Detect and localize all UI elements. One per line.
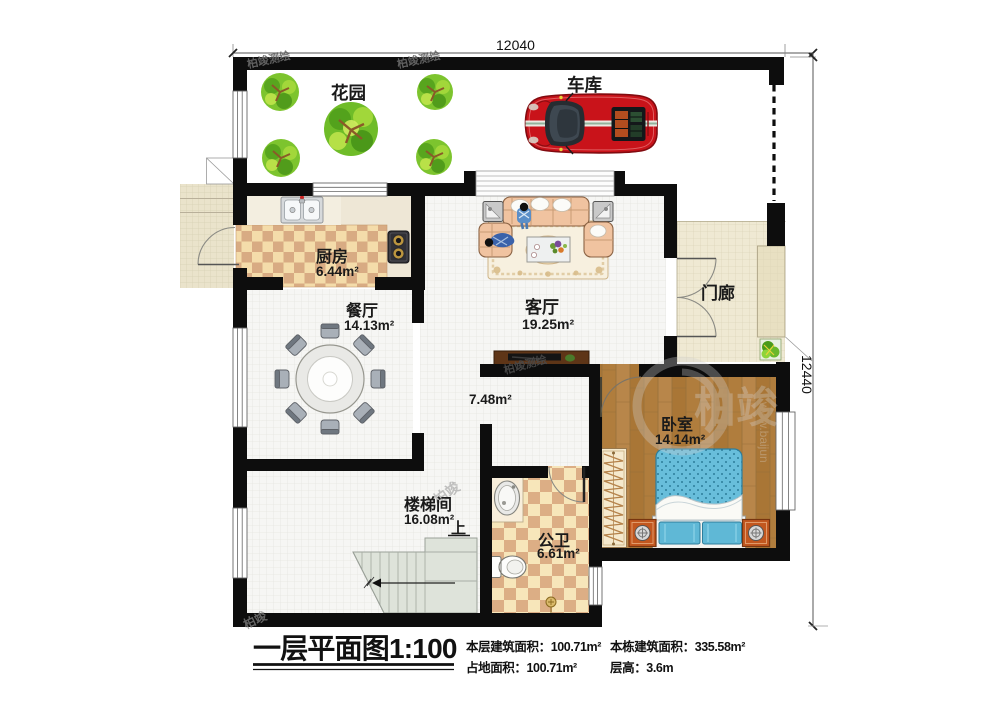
svg-text:本层建筑面积：100.71m²: 本层建筑面积：100.71m² — [466, 639, 601, 654]
svg-text:车库: 车库 — [567, 75, 602, 95]
svg-text:12440: 12440 — [799, 355, 815, 394]
svg-text:6.44m²: 6.44m² — [316, 264, 359, 279]
svg-text:层高：3.6m: 层高：3.6m — [610, 660, 673, 675]
svg-text:14.14m²: 14.14m² — [655, 432, 706, 447]
svg-text:16.08m²: 16.08m² — [404, 512, 455, 527]
svg-text:花园: 花园 — [331, 83, 366, 103]
svg-text:19.25m²: 19.25m² — [522, 316, 574, 332]
svg-text:占地面积：100.71m²: 占地面积：100.71m² — [466, 660, 577, 675]
svg-text:客厅: 客厅 — [524, 297, 559, 317]
svg-text:www.baijun: www.baijun — [757, 401, 771, 463]
svg-text:6.61m²: 6.61m² — [537, 546, 580, 561]
svg-text:一层平面图1:100: 一层平面图1:100 — [253, 633, 457, 664]
svg-text:门廊: 门廊 — [701, 283, 735, 303]
svg-text:本栋建筑面积：335.58m²: 本栋建筑面积：335.58m² — [610, 639, 745, 654]
svg-text:14.13m²: 14.13m² — [344, 318, 395, 333]
svg-text:7.48m²: 7.48m² — [469, 392, 512, 407]
svg-text:12040: 12040 — [496, 37, 535, 53]
svg-text:上: 上 — [451, 520, 466, 537]
